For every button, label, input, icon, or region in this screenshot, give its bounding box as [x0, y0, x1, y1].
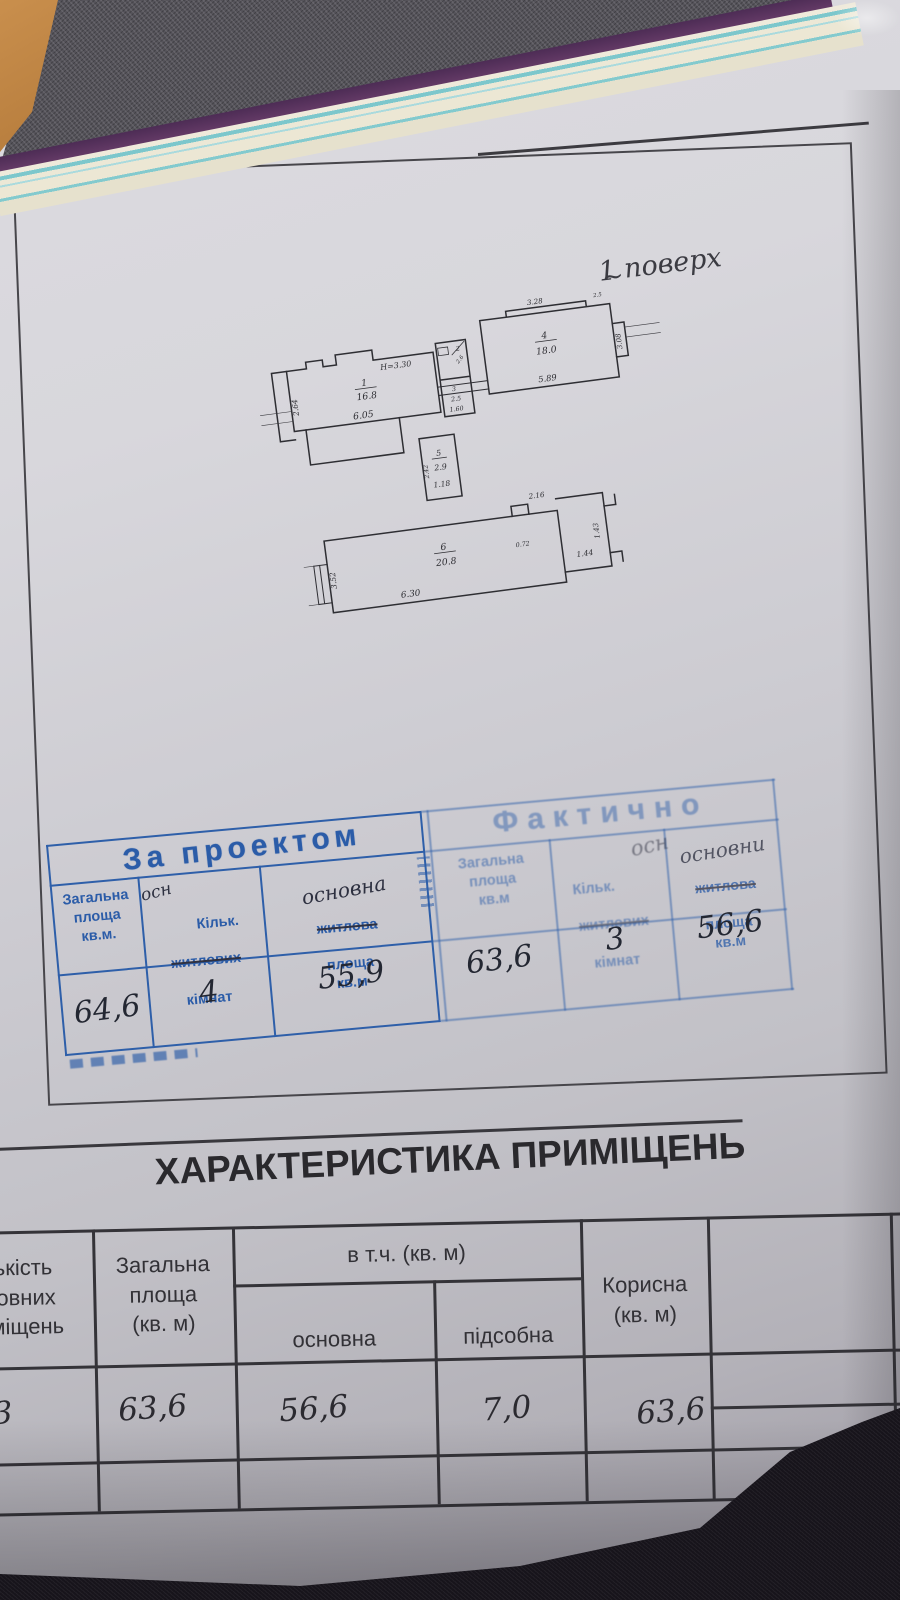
handwritten-osnovny: основни — [666, 828, 779, 871]
stamp-col-main-struck: житлова — [266, 910, 428, 943]
photographed-document-page: ІІ. ПЛАН ПРИМІЩЕНЬ М 1:200 1 поверх ~ — [0, 0, 900, 1600]
room1-height-note: Н=3.30 — [379, 359, 412, 372]
room5-area: 2.9 — [433, 462, 448, 473]
room4-top-dim: 3.28 — [526, 296, 543, 307]
wc-fixtures — [437, 341, 465, 356]
room4-number: 4 — [540, 330, 548, 342]
room4-width: 5.89 — [538, 372, 558, 384]
room4-side-dim: 3.08 — [613, 332, 624, 349]
nook-width-dim: 1.44 — [576, 548, 594, 559]
handwritten-osn: осн — [138, 878, 173, 907]
stamp-col-main-struck: житлова — [670, 872, 781, 901]
room1-width: 6.05 — [353, 409, 375, 423]
col-aux-header: підсобна — [434, 1319, 583, 1352]
room3-number: 3 — [452, 386, 457, 393]
paper-wrinkle-highlight — [790, 0, 900, 90]
handwritten-osnovna: основна — [262, 863, 425, 917]
floor-plan-drawing: 1 16.8 6.05 Н=3.30 2.64 2 2.6 3 2.5 1.60… — [248, 272, 694, 635]
room6-side-dim: 3.52 — [328, 571, 339, 589]
nook-top-dim: 2.16 — [527, 490, 545, 501]
stamp-col-main-actual: основни житлова площа кв.м — [665, 813, 788, 976]
stamp-col-total-actual: Загальна площа кв.м — [433, 848, 553, 915]
room5-side-dim: 2.42 — [423, 464, 432, 480]
table-border — [233, 1277, 581, 1287]
room1-side-dim: 2.64 — [290, 399, 301, 418]
col-useful-header: Корисна (кв. м) — [581, 1269, 709, 1331]
room5-width: 1.18 — [433, 479, 451, 490]
stamp-col-rooms-actual: осн Кільк. житлових кімнат — [551, 835, 675, 995]
value-total-project: 64,6 — [65, 987, 149, 1032]
col-incl-header: в т.ч. (кв. м) — [232, 1235, 581, 1272]
room4-corner-dim: 2.5 — [592, 292, 603, 299]
corridor-double-lines — [438, 381, 489, 396]
col-count-header: Кількість основних приміщень — [0, 1251, 109, 1344]
nook-inner-dim: 0.72 — [515, 540, 530, 549]
stamp-col-total-project: Загальна площа кв.м. — [52, 885, 142, 949]
corridor-walls — [306, 418, 404, 465]
stamp-col-rooms-line1: Кільк. — [143, 909, 262, 938]
table-border — [0, 1211, 900, 1236]
room1-area: 16.8 — [356, 390, 378, 404]
room2-number: 2 — [455, 345, 461, 353]
value-total-actual: 63,6 — [445, 936, 555, 984]
stamp-col-rooms-line1: Кільк. — [555, 873, 667, 902]
room6-width: 6.30 — [400, 588, 421, 601]
room6-area: 20.8 — [434, 556, 457, 570]
room2-dim: 2.6 — [455, 354, 466, 366]
room1-number: 1 — [361, 378, 368, 390]
nook-side-dim: 1.43 — [591, 522, 602, 539]
col-total-header: Загальна площа (кв. м) — [97, 1249, 229, 1341]
room6-number: 6 — [440, 542, 447, 554]
room3-area: 2.5 — [450, 395, 462, 403]
lobby-opening — [603, 494, 623, 562]
col-main-header: основна — [234, 1322, 435, 1356]
room5-number: 5 — [436, 448, 442, 458]
room4-area: 18.0 — [535, 344, 557, 358]
page-edge-shadow — [842, 90, 900, 1510]
floor-plan-svg: 1 16.8 6.05 Н=3.30 2.64 2 2.6 3 2.5 1.60… — [248, 272, 694, 635]
room3-width: 1.60 — [449, 405, 464, 414]
